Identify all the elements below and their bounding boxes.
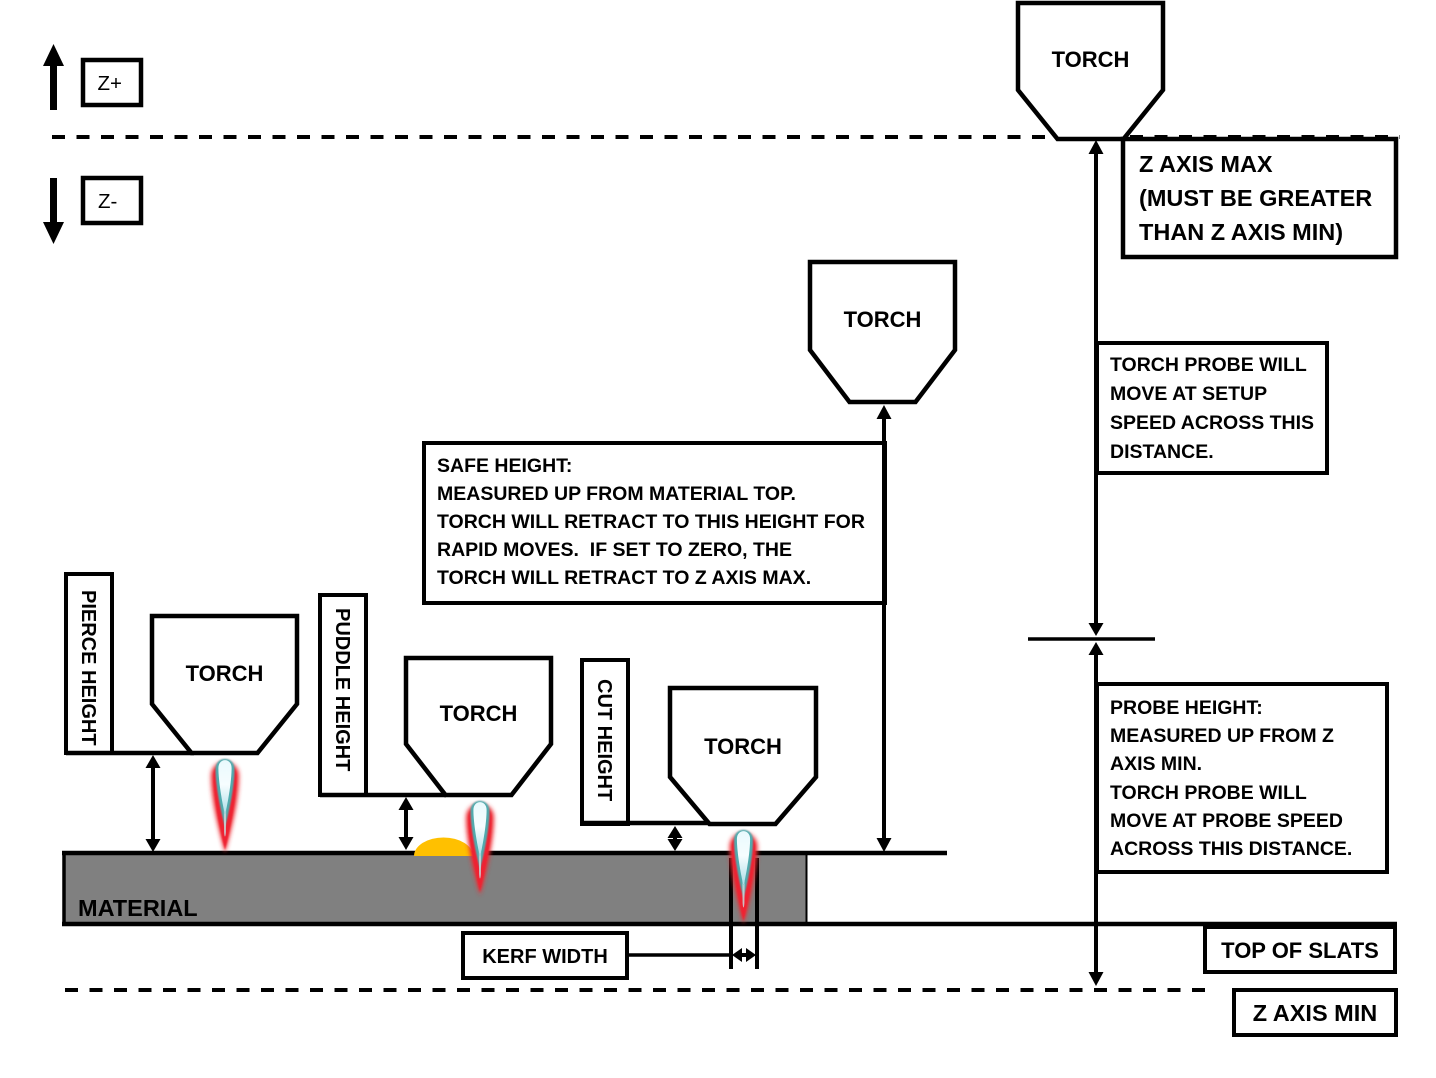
svg-text:TORCH PROBE WILL: TORCH PROBE WILL bbox=[1110, 354, 1307, 376]
svg-text:ACROSS THIS DISTANCE.: ACROSS THIS DISTANCE. bbox=[1110, 838, 1352, 860]
svg-text:TORCH: TORCH bbox=[186, 661, 264, 686]
svg-text:Z AXIS MIN: Z AXIS MIN bbox=[1253, 1000, 1377, 1026]
svg-text:TORCH: TORCH bbox=[1052, 47, 1130, 72]
svg-text:(MUST BE GREATER: (MUST BE GREATER bbox=[1139, 185, 1372, 211]
svg-text:SPEED ACROSS THIS: SPEED ACROSS THIS bbox=[1110, 412, 1314, 434]
svg-text:MOVE AT SETUP: MOVE AT SETUP bbox=[1110, 383, 1267, 405]
svg-text:PIERCE HEIGHT: PIERCE HEIGHT bbox=[77, 590, 99, 746]
svg-text:AXIS MIN.: AXIS MIN. bbox=[1110, 753, 1202, 775]
svg-text:RAPID MOVES. IF SET TO ZERO,: RAPID MOVES. IF SET TO ZERO, THE bbox=[437, 539, 792, 561]
svg-text:TORCH: TORCH bbox=[704, 734, 782, 759]
svg-text:MATERIAL: MATERIAL bbox=[78, 895, 198, 921]
svg-text:THAN Z AXIS MIN): THAN Z AXIS MIN) bbox=[1139, 219, 1343, 245]
svg-text:TORCH: TORCH bbox=[844, 307, 922, 332]
svg-text:Z-: Z- bbox=[98, 190, 117, 213]
svg-text:CUT HEIGHT: CUT HEIGHT bbox=[593, 679, 615, 801]
svg-text:PROBE HEIGHT:: PROBE HEIGHT: bbox=[1110, 697, 1263, 719]
svg-text:MEASURED UP FROM Z: MEASURED UP FROM Z bbox=[1110, 725, 1334, 747]
svg-text:TORCH: TORCH bbox=[440, 701, 518, 726]
svg-text:MEASURED UP FROM MATERIAL TOP.: MEASURED UP FROM MATERIAL TOP. bbox=[437, 483, 796, 505]
svg-text:MOVE AT PROBE SPEED: MOVE AT PROBE SPEED bbox=[1110, 810, 1343, 832]
svg-text:Z AXIS MAX: Z AXIS MAX bbox=[1139, 151, 1273, 177]
svg-text:DISTANCE.: DISTANCE. bbox=[1110, 441, 1214, 463]
svg-text:TORCH PROBE WILL: TORCH PROBE WILL bbox=[1110, 782, 1307, 804]
svg-text:TORCH WILL RETRACT TO Z AXIS M: TORCH WILL RETRACT TO Z AXIS MAX. bbox=[437, 567, 811, 589]
svg-text:TOP OF SLATS: TOP OF SLATS bbox=[1221, 938, 1379, 963]
svg-text:TORCH WILL RETRACT TO THIS HEI: TORCH WILL RETRACT TO THIS HEIGHT FOR bbox=[437, 511, 865, 533]
svg-text:SAFE HEIGHT:: SAFE HEIGHT: bbox=[437, 455, 572, 477]
svg-text:KERF WIDTH: KERF WIDTH bbox=[482, 946, 608, 968]
svg-text:PUDDLE HEIGHT: PUDDLE HEIGHT bbox=[331, 608, 353, 771]
svg-text:Z+: Z+ bbox=[98, 72, 123, 95]
